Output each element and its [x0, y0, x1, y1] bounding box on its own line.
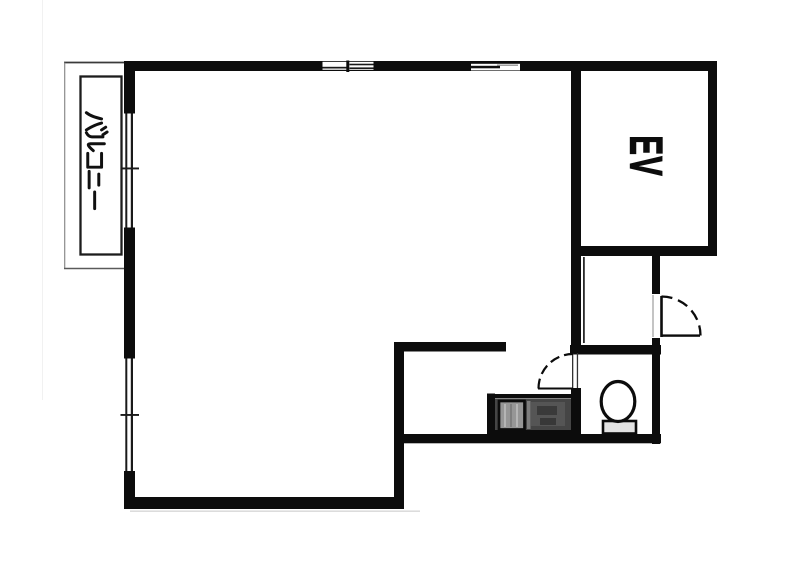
svg-text:EV: EV — [620, 136, 670, 178]
